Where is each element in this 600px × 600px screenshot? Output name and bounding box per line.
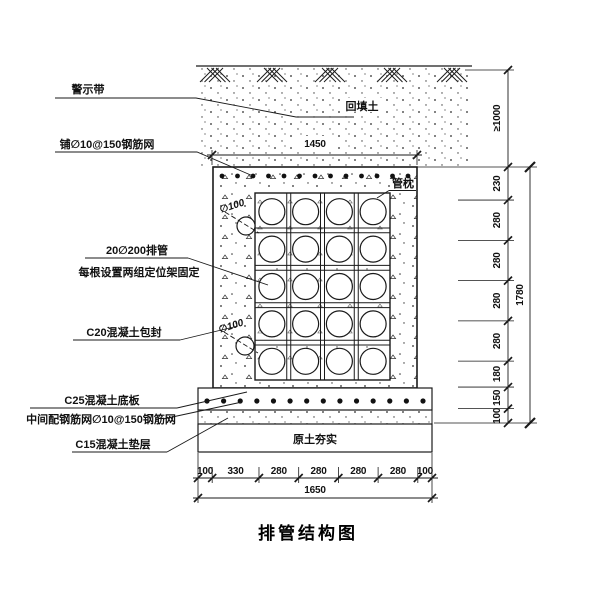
rebar-dot xyxy=(354,398,359,403)
pipe-circle xyxy=(326,274,352,300)
pipe-circle xyxy=(293,274,319,300)
right-dim-label: 280 xyxy=(492,252,503,269)
bottom-total-label: 1650 xyxy=(304,485,326,496)
warning-tape-label: 警示带 xyxy=(71,82,105,96)
pipe-circle xyxy=(259,348,285,374)
pipe-circle xyxy=(293,199,319,225)
rebar-dot xyxy=(337,398,342,403)
top-dim-label: 1450 xyxy=(304,139,326,150)
rebar-dot xyxy=(387,398,392,403)
base-plate xyxy=(198,388,432,410)
rebar-dot xyxy=(287,398,292,403)
bottom-dim-label: 280 xyxy=(350,466,367,477)
pipe-row-label-line1: 20∅200排管 xyxy=(106,243,168,257)
right-dim-label: 230 xyxy=(492,175,503,192)
page-title: 排管结构图 xyxy=(258,523,358,543)
pipe-circle xyxy=(326,199,352,225)
bottom-dim-label: 280 xyxy=(310,466,327,477)
drain-pipe-circle-lower xyxy=(236,337,254,355)
rebar-dot xyxy=(221,398,226,403)
rebar-dot xyxy=(344,174,349,179)
rebar-dot xyxy=(282,174,287,179)
pipe-row-label-line2: 每根设置两组定位架固定 xyxy=(79,265,200,279)
rebar-dot xyxy=(271,398,276,403)
pipe-circle xyxy=(293,348,319,374)
pipe-circle xyxy=(293,311,319,337)
bottom-dim-label: 280 xyxy=(271,466,288,477)
compacted-soil-label: 原土夯实 xyxy=(293,432,337,446)
bottom-dim-label: 100 xyxy=(417,466,434,477)
pipe-circle xyxy=(326,236,352,262)
bottom-dim-label: 100 xyxy=(197,466,214,477)
pipe-circle xyxy=(360,311,386,337)
bottom-dim-label: 280 xyxy=(390,466,407,477)
right-dim-label: 280 xyxy=(492,332,503,349)
right-dim-label: 100 xyxy=(492,407,503,424)
rebar-dot xyxy=(371,398,376,403)
pipe-circle xyxy=(259,199,285,225)
drawing-canvas: 警示带 铺∅10@150钢筋网 20∅200排管 每根设置两组定位架固定 C20… xyxy=(0,0,600,600)
rebar-dot xyxy=(254,398,259,403)
right-dim-label: 180 xyxy=(492,365,503,382)
pipe-circle xyxy=(259,311,285,337)
cover-depth-label: ≥1000 xyxy=(492,104,503,131)
rebar-dot xyxy=(235,174,240,179)
pipe-pillow-label: 管枕 xyxy=(392,176,414,190)
pipe-circle xyxy=(293,236,319,262)
rebar-dot xyxy=(313,174,318,179)
rebar-dot xyxy=(220,174,225,179)
structure-drawing: 警示带 铺∅10@150钢筋网 20∅200排管 每根设置两组定位架固定 C20… xyxy=(0,0,600,600)
rebar-dot xyxy=(404,398,409,403)
pipe-circle xyxy=(259,236,285,262)
pipe-circle xyxy=(360,274,386,300)
cushion-layer xyxy=(198,410,432,424)
right-dim-label: 280 xyxy=(492,292,503,309)
middle-mesh-label: 中间配钢筋网∅10@150钢筋网 xyxy=(26,412,176,426)
base-plate-label: C25混凝土底板 xyxy=(64,393,140,407)
rebar-dot xyxy=(321,398,326,403)
pipe-circle xyxy=(360,348,386,374)
pipe-circle xyxy=(326,311,352,337)
rebar-dot xyxy=(304,398,309,403)
encasement-label: C20混凝土包封 xyxy=(86,325,161,339)
rebar-dot xyxy=(266,174,271,179)
backfill-label: 回填土 xyxy=(346,99,379,113)
right-dim-label: 280 xyxy=(492,212,503,229)
rebar-dot xyxy=(328,174,333,179)
pipe-circle xyxy=(360,236,386,262)
bottom-dim-label: 330 xyxy=(228,466,245,477)
backfill-soil-area xyxy=(196,67,471,166)
top-mesh-label: 铺∅10@150钢筋网 xyxy=(60,137,155,151)
right-total-label: 1780 xyxy=(515,284,526,306)
rebar-dot xyxy=(375,174,380,179)
rebar-dot xyxy=(297,174,302,179)
rebar-dot xyxy=(420,398,425,403)
pipe-circle xyxy=(360,199,386,225)
right-dim-label: 150 xyxy=(492,389,503,406)
pipe-circle xyxy=(326,348,352,374)
rebar-dot xyxy=(359,174,364,179)
cushion-label: C15混凝土垫层 xyxy=(75,437,150,451)
drain-pipe-circle-upper xyxy=(237,217,255,235)
pipe-circle xyxy=(259,274,285,300)
